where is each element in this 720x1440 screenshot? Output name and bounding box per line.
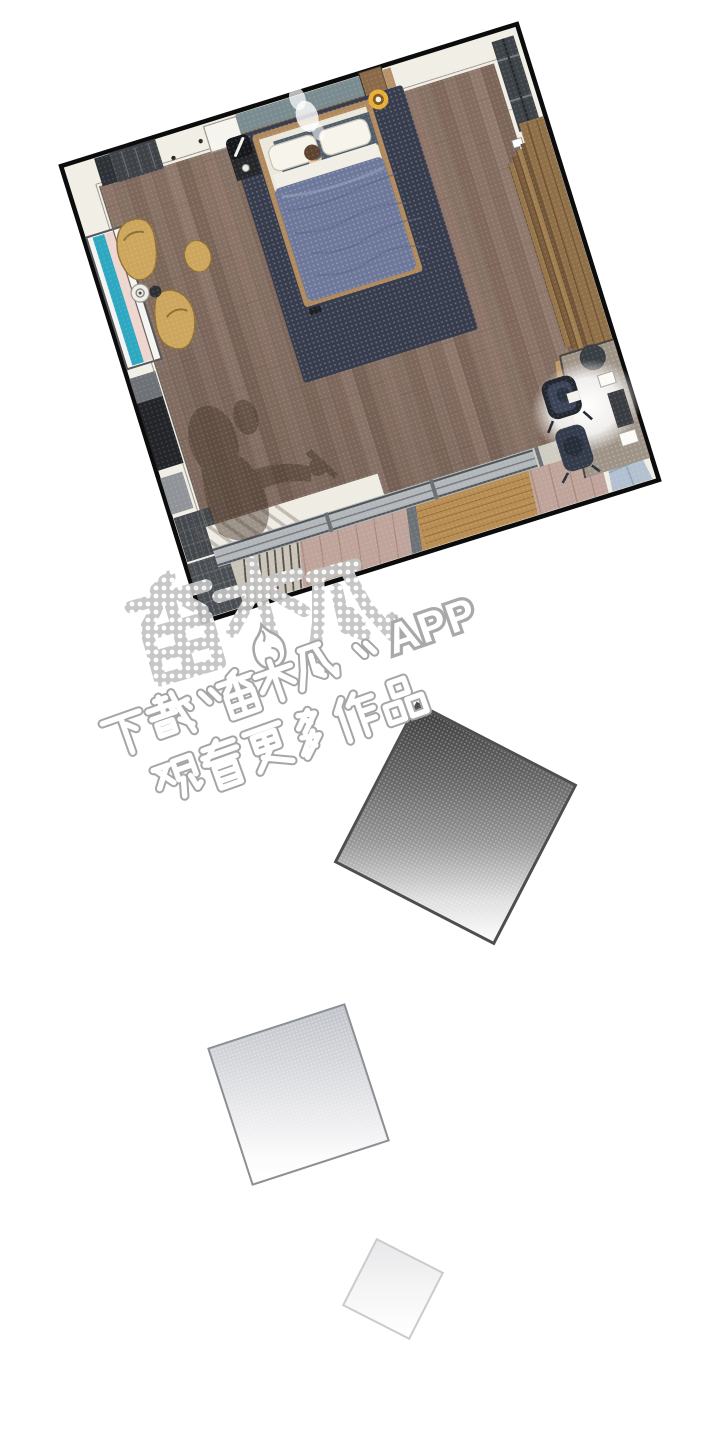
svg-text:APP: APP (380, 588, 483, 663)
